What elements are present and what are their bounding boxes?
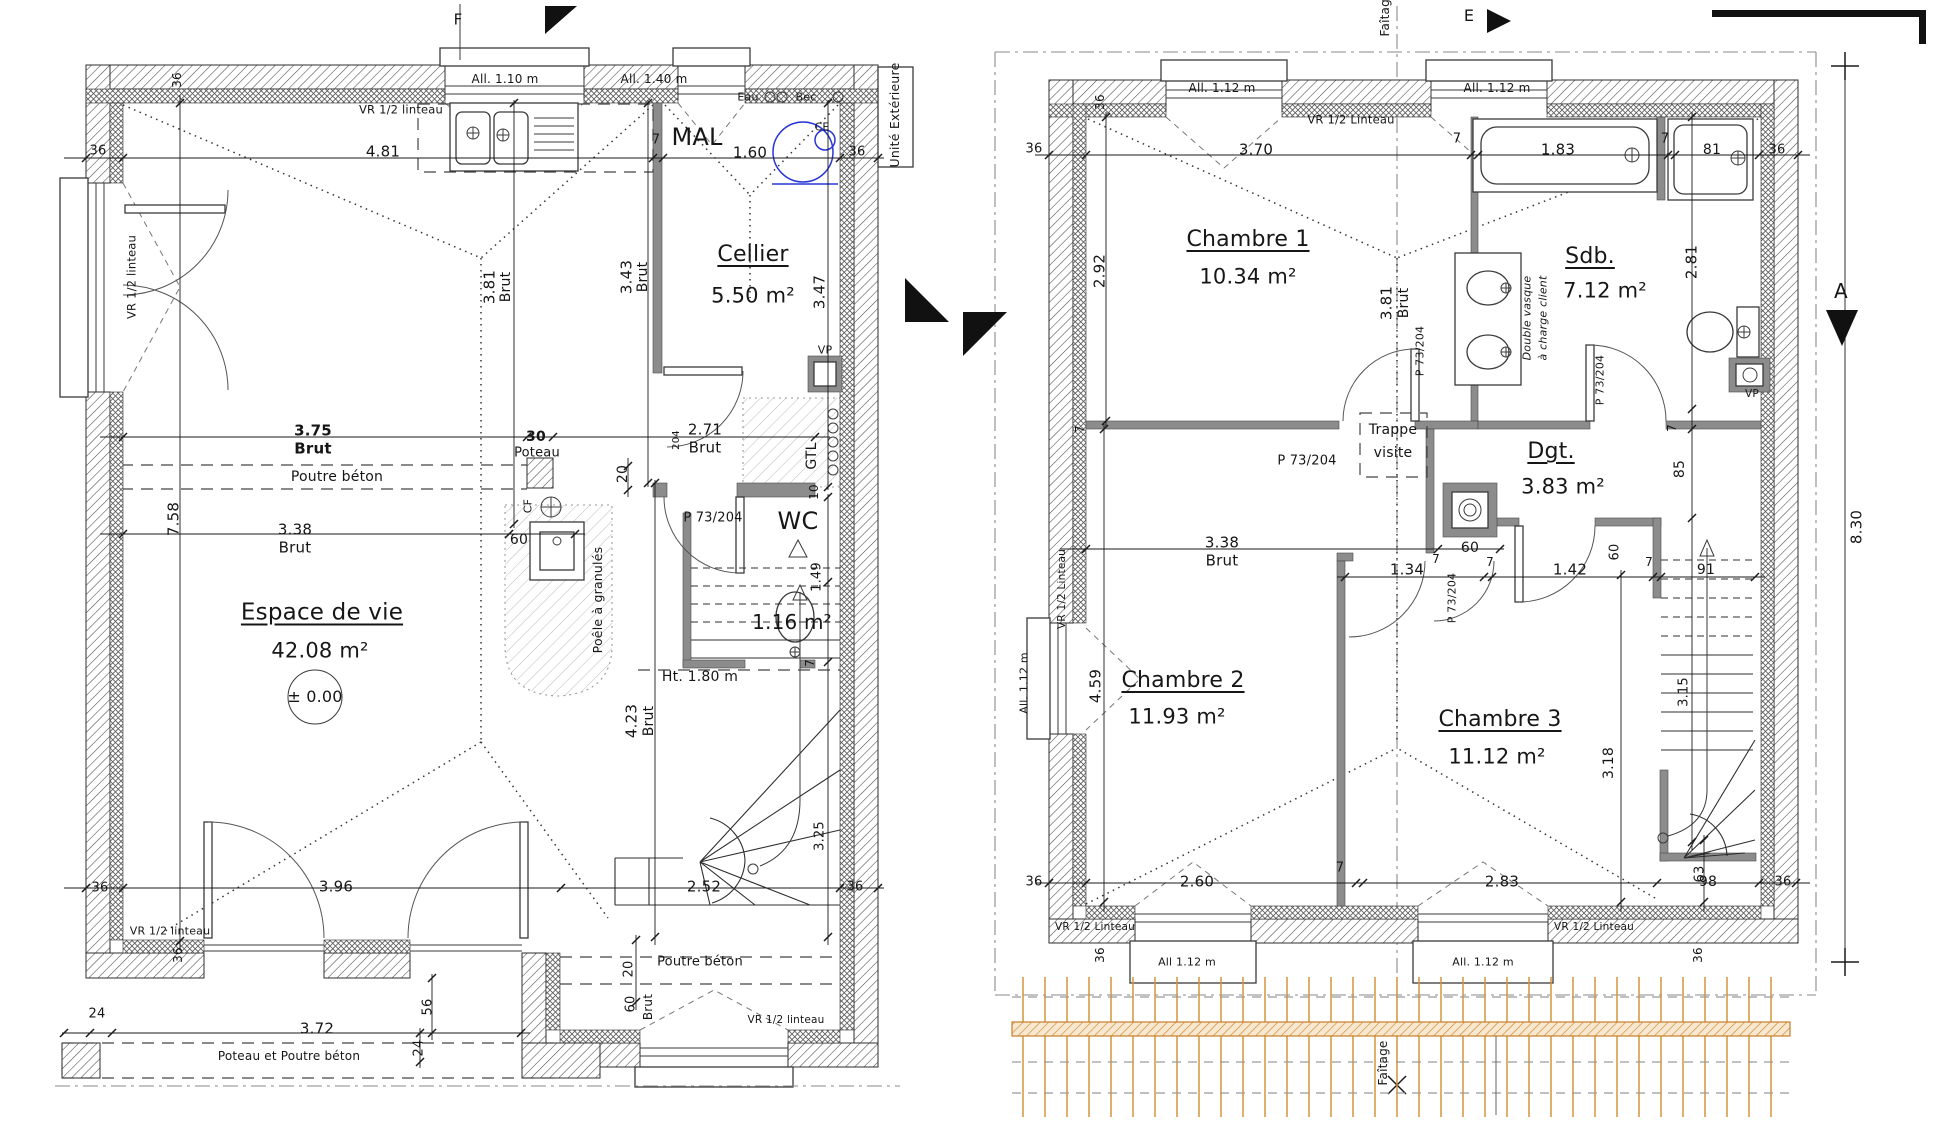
hatch-zone-entry [743,398,840,487]
terrace-posts [62,1043,600,1078]
shower-icon [1668,119,1753,200]
section-a-arrow-right [963,312,1007,356]
unite-exterieure-box [878,67,913,167]
vp-duct-icon [1729,358,1770,392]
bathtub-icon [1473,119,1657,192]
toilet-icon [1687,307,1759,357]
upper-floor-plan [995,6,1816,1117]
water-heater-icon [765,92,843,184]
exterior-walls [1049,80,1798,943]
partitions [653,103,815,668]
partitions [1086,117,1761,906]
plan-drawing: .w{fill:url(#h6);stroke:#2e2e2e;stroke-w… [0,0,1936,1128]
section-e-arrow [1487,9,1511,33]
doors [1343,345,1666,637]
stove-icon [530,522,584,580]
wc-vent-symbol [789,540,807,557]
cf-symbol [541,497,561,517]
ground-floor-plan [60,48,913,1087]
stairs [1658,540,1755,858]
sheet-frame-corner [1712,10,1926,17]
beam-lines [121,465,875,984]
toilet-icon [776,592,814,657]
column-poteau [527,458,553,488]
vp-duct-icon [808,356,842,392]
ceiling-ridge-lines [1086,119,1758,904]
roof-grid-band [1012,977,1790,1117]
section-a-arrow-side [1826,310,1858,346]
section-a-arrow-left [905,278,949,322]
section-f-arrow [545,6,577,34]
doors [123,190,744,938]
level-circle [288,670,342,724]
ceiling-ridge-lines [123,105,838,933]
washbasin-icon [1455,253,1521,385]
floor-plan-sheet: .w{fill:url(#h6);stroke:#2e2e2e;stroke-w… [0,0,1936,1128]
kitchen-sink-icon [418,103,653,172]
conduit-shaft-icon [1443,483,1497,537]
